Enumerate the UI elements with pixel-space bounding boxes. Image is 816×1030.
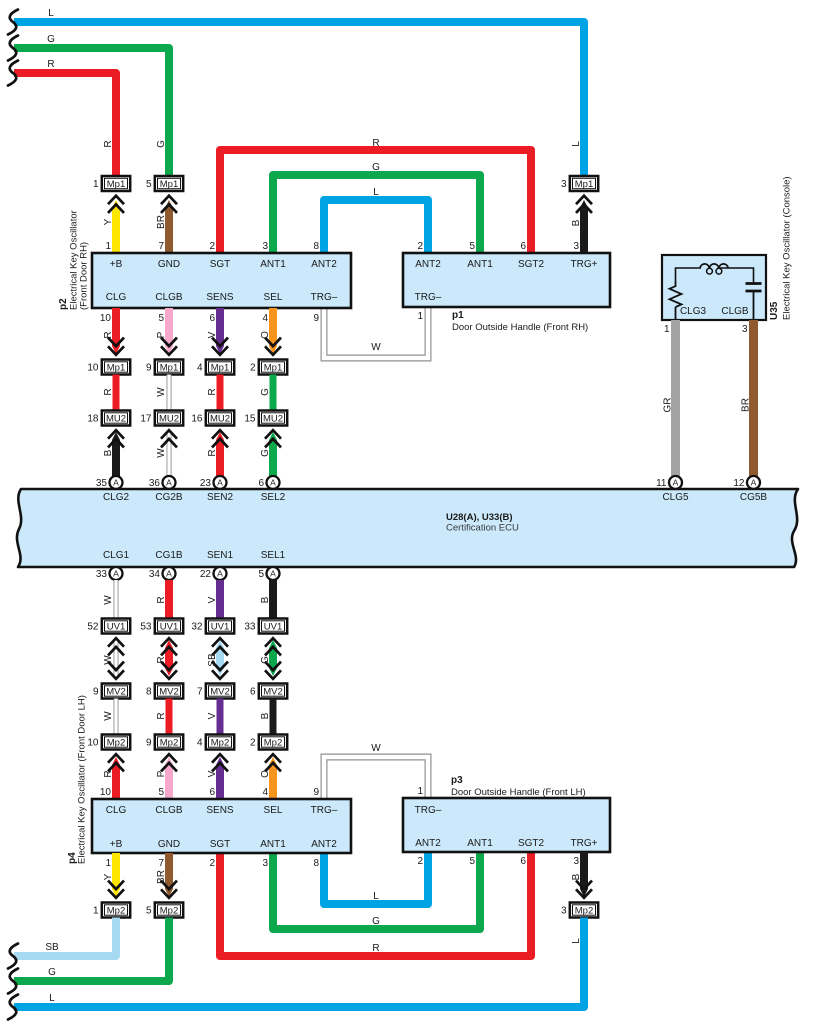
svg-text:Electrical Key Oscillator (Con: Electrical Key Oscillator (Console) (782, 176, 793, 320)
svg-text:7: 7 (197, 687, 203, 698)
svg-text:1: 1 (93, 906, 99, 917)
svg-text:A: A (270, 478, 276, 488)
svg-text:O: O (260, 331, 271, 339)
svg-text:L: L (373, 891, 379, 902)
svg-text:L: L (571, 141, 582, 147)
svg-text:V: V (207, 712, 218, 719)
svg-text:R: R (47, 59, 54, 70)
svg-text:SB: SB (45, 942, 59, 953)
svg-text:3: 3 (742, 324, 748, 335)
svg-text:R: R (103, 770, 114, 777)
svg-text:TRG–: TRG– (415, 805, 442, 816)
svg-text:ANT2: ANT2 (311, 259, 337, 270)
svg-text:Mp2: Mp2 (575, 906, 593, 917)
svg-text:BR: BR (156, 215, 167, 229)
svg-text:Mp1: Mp1 (575, 179, 593, 190)
svg-text:TRG–: TRG– (311, 292, 338, 303)
svg-text:Y: Y (103, 218, 114, 225)
svg-text:CG5B: CG5B (740, 492, 768, 503)
svg-text:MV2: MV2 (106, 687, 126, 698)
svg-text:6: 6 (209, 787, 215, 798)
svg-text:5: 5 (258, 569, 264, 580)
svg-text:10: 10 (100, 787, 112, 798)
svg-text:V: V (207, 770, 218, 777)
svg-text:SB: SB (207, 653, 218, 667)
svg-text:SEL: SEL (264, 805, 283, 816)
svg-text:2: 2 (417, 241, 423, 252)
svg-text:A: A (113, 569, 119, 579)
svg-text:5: 5 (158, 787, 164, 798)
svg-text:B: B (571, 219, 582, 226)
svg-text:L: L (373, 187, 379, 198)
svg-text:R: R (156, 656, 167, 663)
svg-text:6: 6 (209, 313, 215, 324)
svg-text:B: B (103, 449, 114, 456)
svg-text:G: G (48, 967, 56, 978)
svg-text:9: 9 (313, 787, 319, 798)
svg-text:5: 5 (469, 856, 475, 867)
svg-text:11: 11 (656, 478, 667, 489)
svg-text:4: 4 (197, 738, 203, 749)
svg-text:ANT1: ANT1 (467, 259, 493, 270)
svg-text:R: R (156, 712, 167, 719)
svg-text:Mp1: Mp1 (107, 363, 125, 374)
svg-text:4: 4 (262, 787, 268, 798)
svg-text:17: 17 (140, 414, 152, 425)
svg-text:Door Outside Handle (Front RH): Door Outside Handle (Front RH) (452, 322, 588, 333)
svg-text:3: 3 (573, 856, 579, 867)
svg-text:Y: Y (103, 873, 114, 880)
svg-text:A: A (217, 478, 223, 488)
svg-text:W: W (103, 595, 114, 605)
svg-text:3: 3 (561, 179, 567, 190)
svg-text:6: 6 (258, 478, 264, 489)
svg-text:32: 32 (191, 622, 203, 633)
svg-text:Mp1: Mp1 (107, 179, 125, 190)
svg-text:4: 4 (262, 313, 268, 324)
svg-text:A: A (751, 478, 757, 488)
svg-text:1: 1 (105, 241, 111, 252)
svg-text:CLGB: CLGB (721, 306, 749, 317)
svg-text:CLG: CLG (106, 805, 127, 816)
svg-text:CLG1: CLG1 (103, 550, 130, 561)
svg-text:U35: U35 (769, 301, 780, 320)
svg-text:3: 3 (262, 241, 268, 252)
svg-text:Mp2: Mp2 (160, 906, 178, 917)
svg-text:SEL2: SEL2 (261, 492, 286, 503)
svg-text:G: G (372, 162, 380, 173)
svg-text:CLGB: CLGB (155, 805, 183, 816)
svg-text:MU2: MU2 (159, 414, 179, 425)
svg-text:GR: GR (663, 398, 674, 413)
svg-text:ANT1: ANT1 (260, 839, 286, 850)
svg-text:8: 8 (146, 687, 152, 698)
svg-text:7: 7 (158, 241, 164, 252)
svg-text:1: 1 (105, 858, 111, 869)
svg-text:A: A (166, 478, 172, 488)
svg-text:+B: +B (110, 259, 123, 270)
svg-text:SEN2: SEN2 (207, 492, 234, 503)
svg-text:6: 6 (250, 687, 256, 698)
svg-text:CG1B: CG1B (155, 550, 183, 561)
svg-text:8: 8 (313, 241, 319, 252)
svg-text:CG2B: CG2B (155, 492, 183, 503)
svg-text:1: 1 (417, 311, 423, 322)
svg-text:Mp1: Mp1 (160, 363, 178, 374)
svg-text:B: B (260, 596, 271, 603)
svg-text:10: 10 (100, 313, 112, 324)
svg-text:10: 10 (87, 738, 99, 749)
svg-text:9: 9 (93, 687, 99, 698)
svg-text:G: G (372, 916, 380, 927)
svg-text:Mp2: Mp2 (107, 738, 125, 749)
svg-text:Mp2: Mp2 (264, 738, 282, 749)
svg-text:R: R (207, 388, 218, 395)
svg-text:MV2: MV2 (210, 687, 230, 698)
svg-text:G: G (260, 656, 271, 664)
svg-text:SENS: SENS (206, 805, 234, 816)
svg-text:4: 4 (197, 363, 203, 374)
svg-text:W: W (103, 711, 114, 721)
svg-text:7: 7 (158, 858, 164, 869)
svg-text:10: 10 (87, 363, 99, 374)
svg-text:+B: +B (110, 839, 123, 850)
svg-text:9: 9 (146, 363, 152, 374)
svg-text:12: 12 (733, 478, 745, 489)
svg-text:W: W (156, 448, 167, 458)
svg-text:16: 16 (191, 414, 203, 425)
svg-text:A: A (217, 569, 223, 579)
svg-text:CLG2: CLG2 (103, 492, 130, 503)
svg-text:5: 5 (146, 179, 152, 190)
svg-text:SGT2: SGT2 (518, 259, 545, 270)
svg-text:(Front Door RH): (Front Door RH) (79, 242, 90, 310)
svg-text:Door Outside Handle (Front LH): Door Outside Handle (Front LH) (451, 787, 586, 798)
svg-text:GND: GND (158, 839, 180, 850)
svg-text:B: B (571, 873, 582, 880)
svg-text:5: 5 (469, 241, 475, 252)
svg-text:1: 1 (93, 179, 99, 190)
svg-text:R: R (372, 138, 379, 149)
svg-text:Electrical Key Oscillator (Fro: Electrical Key Oscillator (Front Door LH… (77, 695, 88, 864)
svg-text:23: 23 (200, 478, 212, 489)
svg-text:TRG+: TRG+ (571, 838, 598, 849)
svg-text:2: 2 (209, 241, 215, 252)
svg-text:22: 22 (200, 569, 212, 580)
svg-text:R: R (103, 388, 114, 395)
svg-text:MU2: MU2 (210, 414, 230, 425)
svg-text:MU2: MU2 (106, 414, 126, 425)
svg-text:P: P (156, 331, 167, 338)
svg-text:W: W (103, 655, 114, 665)
svg-text:Mp1: Mp1 (211, 363, 229, 374)
svg-text:P: P (156, 770, 167, 777)
svg-text:R: R (103, 140, 114, 147)
svg-text:R: R (156, 596, 167, 603)
svg-text:W: W (156, 387, 167, 397)
svg-text:TRG–: TRG– (311, 805, 338, 816)
svg-text:Mp1: Mp1 (160, 179, 178, 190)
svg-text:MV2: MV2 (263, 687, 283, 698)
svg-text:33: 33 (96, 569, 108, 580)
svg-text:A: A (270, 569, 276, 579)
svg-text:R: R (372, 943, 379, 954)
svg-text:SEL: SEL (264, 292, 283, 303)
svg-text:L: L (48, 8, 54, 19)
svg-text:SENS: SENS (206, 292, 234, 303)
svg-text:A: A (673, 478, 679, 488)
svg-text:8: 8 (313, 858, 319, 869)
svg-text:G: G (260, 449, 271, 457)
svg-text:SGT2: SGT2 (518, 838, 545, 849)
svg-text:53: 53 (140, 622, 152, 633)
svg-text:p1: p1 (452, 310, 464, 321)
svg-text:ANT1: ANT1 (467, 838, 493, 849)
svg-text:R: R (103, 331, 114, 338)
svg-text:W: W (371, 743, 381, 754)
svg-text:L: L (571, 938, 582, 944)
svg-text:Mp2: Mp2 (107, 906, 125, 917)
svg-text:UV1: UV1 (211, 622, 229, 633)
svg-text:W: W (371, 342, 381, 353)
svg-text:2: 2 (250, 738, 256, 749)
svg-text:R: R (207, 449, 218, 456)
svg-text:36: 36 (149, 478, 161, 489)
svg-text:p2: p2 (58, 298, 69, 310)
svg-text:18: 18 (87, 414, 99, 425)
svg-text:TRG+: TRG+ (571, 259, 598, 270)
svg-text:Mp1: Mp1 (264, 363, 282, 374)
svg-text:CLG: CLG (106, 292, 127, 303)
svg-text:CLG5: CLG5 (662, 492, 689, 503)
svg-text:G: G (47, 34, 55, 45)
svg-text:52: 52 (87, 622, 99, 633)
svg-text:1: 1 (664, 324, 670, 335)
svg-text:2: 2 (250, 363, 256, 374)
svg-text:6: 6 (520, 241, 526, 252)
svg-text:5: 5 (146, 906, 152, 917)
svg-text:MV2: MV2 (159, 687, 179, 698)
svg-text:SGT: SGT (210, 259, 231, 270)
svg-text:3: 3 (561, 906, 567, 917)
svg-text:35: 35 (96, 478, 108, 489)
svg-text:ANT2: ANT2 (311, 839, 337, 850)
svg-text:A: A (113, 478, 119, 488)
svg-text:BR: BR (741, 398, 752, 412)
svg-text:9: 9 (313, 313, 319, 324)
svg-text:5: 5 (158, 313, 164, 324)
svg-text:SGT: SGT (210, 839, 231, 850)
svg-text:1: 1 (417, 786, 423, 797)
svg-text:ANT2: ANT2 (415, 259, 441, 270)
svg-text:SEL1: SEL1 (261, 550, 286, 561)
svg-text:2: 2 (417, 856, 423, 867)
svg-text:V: V (207, 596, 218, 603)
svg-text:Mp2: Mp2 (160, 738, 178, 749)
svg-text:ANT2: ANT2 (415, 838, 441, 849)
svg-text:6: 6 (520, 856, 526, 867)
svg-text:UV1: UV1 (264, 622, 282, 633)
svg-text:BR: BR (156, 870, 167, 884)
svg-text:UV1: UV1 (160, 622, 178, 633)
svg-text:L: L (49, 993, 55, 1004)
svg-text:15: 15 (244, 414, 256, 425)
svg-text:Certification ECU: Certification ECU (446, 523, 519, 534)
svg-text:V: V (207, 331, 218, 338)
svg-text:CLGB: CLGB (155, 292, 183, 303)
svg-text:34: 34 (149, 569, 161, 580)
svg-text:3: 3 (262, 858, 268, 869)
svg-text:G: G (156, 140, 167, 148)
svg-text:ANT1: ANT1 (260, 259, 286, 270)
svg-text:GND: GND (158, 259, 180, 270)
svg-text:G: G (260, 388, 271, 396)
svg-text:CLG3: CLG3 (680, 306, 707, 317)
svg-text:MU2: MU2 (263, 414, 283, 425)
svg-text:U28(A), U33(B): U28(A), U33(B) (446, 512, 513, 523)
svg-text:Mp2: Mp2 (211, 738, 229, 749)
svg-text:B: B (260, 712, 271, 719)
svg-text:UV1: UV1 (107, 622, 125, 633)
svg-text:3: 3 (573, 241, 579, 252)
svg-text:9: 9 (146, 738, 152, 749)
svg-text:A: A (166, 569, 172, 579)
svg-text:O: O (260, 770, 271, 778)
svg-text:p3: p3 (451, 775, 463, 786)
svg-text:TRG–: TRG– (415, 292, 442, 303)
svg-text:SEN1: SEN1 (207, 550, 234, 561)
svg-text:33: 33 (244, 622, 256, 633)
svg-text:2: 2 (209, 858, 215, 869)
